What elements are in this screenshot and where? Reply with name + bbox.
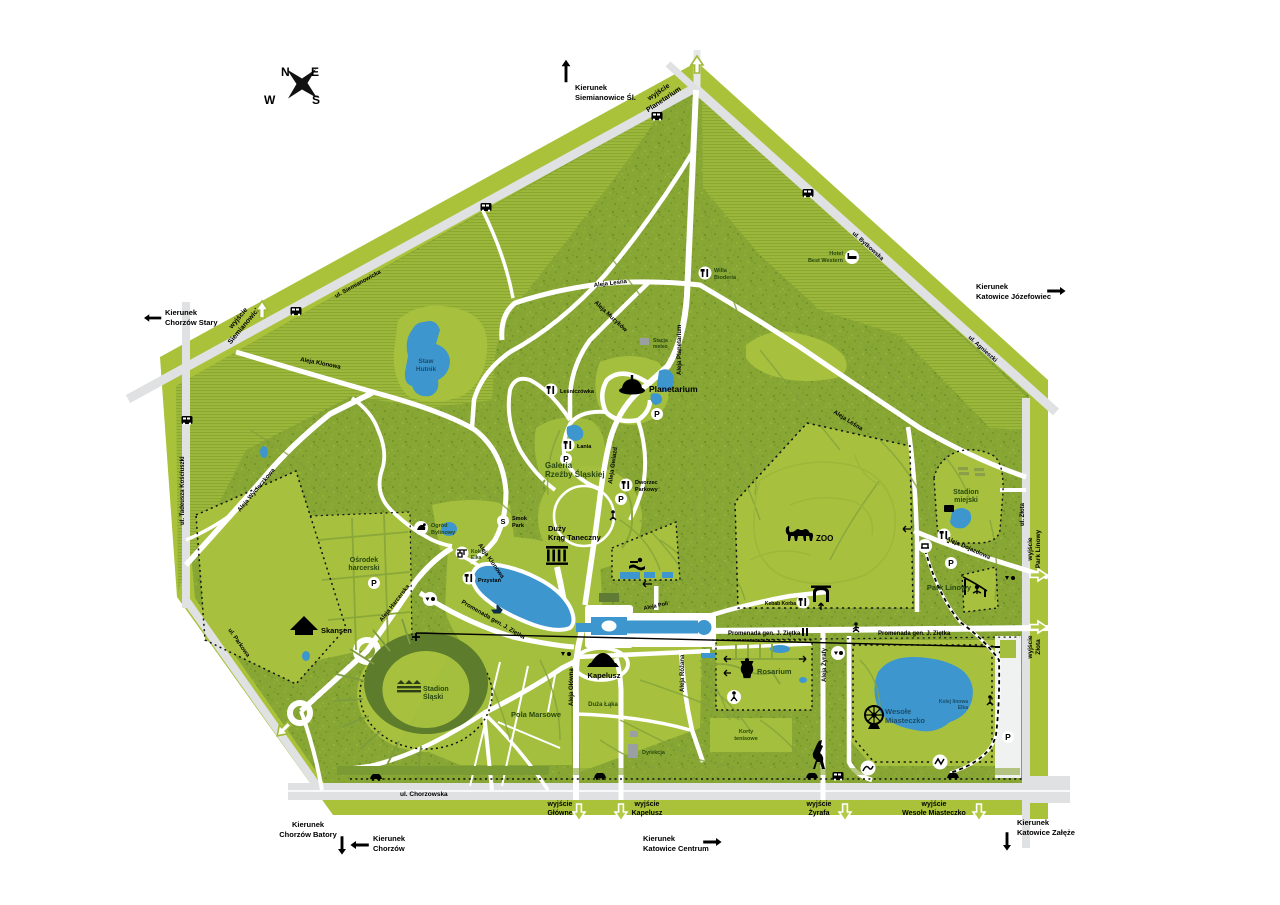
svg-text:ul. Złota: ul. Złota <box>1020 502 1026 526</box>
svg-text:Kierunek: Kierunek <box>1017 818 1050 827</box>
svg-text:Rzeźby Śląskiej: Rzeźby Śląskiej <box>545 470 605 479</box>
svg-text:Best Western: Best Western <box>808 258 844 264</box>
svg-text:Miasteczko: Miasteczko <box>885 716 925 725</box>
svg-text:Siemianowice Śl.: Siemianowice Śl. <box>575 93 636 102</box>
svg-text:S: S <box>500 517 505 526</box>
svg-text:Stadion: Stadion <box>423 686 449 693</box>
svg-text:Elka: Elka <box>471 555 482 561</box>
svg-text:Ośrodek: Ośrodek <box>350 557 379 564</box>
svg-text:meteo: meteo <box>653 344 668 350</box>
svg-text:Duża Łąka: Duża Łąka <box>588 702 618 708</box>
svg-text:Park Linowy: Park Linowy <box>1035 529 1042 568</box>
svg-text:Rosarium: Rosarium <box>757 667 792 676</box>
svg-text:Chorzów Stary: Chorzów Stary <box>165 318 218 327</box>
svg-text:Przystań: Przystań <box>478 578 502 584</box>
svg-text:miejski: miejski <box>954 497 978 504</box>
svg-text:Promenada gen. J. Ziętka: Promenada gen. J. Ziętka <box>728 631 801 637</box>
svg-text:Pola Marsowe: Pola Marsowe <box>511 710 561 719</box>
svg-text:Łania: Łania <box>577 444 592 450</box>
svg-text:ul. Chorzowska: ul. Chorzowska <box>400 791 448 798</box>
svg-text:Stadion: Stadion <box>953 489 979 496</box>
svg-text:Ogród: Ogród <box>431 523 448 529</box>
svg-text:Żyrafa: Żyrafa <box>808 809 829 817</box>
svg-text:Wesołe: Wesołe <box>885 707 911 716</box>
svg-text:Aleja Planetarium: Aleja Planetarium <box>677 325 683 375</box>
svg-text:Chorzów Batory: Chorzów Batory <box>279 830 337 839</box>
svg-text:wyjście: wyjście <box>806 801 832 808</box>
svg-text:Kapelusz: Kapelusz <box>632 810 663 817</box>
svg-text:Galeria: Galeria <box>545 461 573 470</box>
svg-text:Smok: Smok <box>512 516 528 522</box>
svg-text:Hutnik: Hutnik <box>416 366 437 373</box>
svg-text:E: E <box>311 65 319 79</box>
svg-text:Aleja Żyrafy: Aleja Żyrafy <box>821 647 828 682</box>
svg-text:Kierunek: Kierunek <box>373 834 406 843</box>
svg-text:Kierunek: Kierunek <box>575 83 608 92</box>
svg-text:wyjście: wyjście <box>921 801 947 808</box>
svg-text:Kierunek: Kierunek <box>976 282 1009 291</box>
svg-text:Duży: Duży <box>548 524 567 533</box>
svg-text:Aleja Różana: Aleja Różana <box>680 654 686 692</box>
svg-text:Promenada gen. J. Ziętka: Promenada gen. J. Ziętka <box>878 631 951 637</box>
svg-text:Kebab Korba: Kebab Korba <box>765 601 796 607</box>
svg-text:wyjście: wyjście <box>1027 537 1034 562</box>
svg-text:Planetarium: Planetarium <box>649 384 698 394</box>
svg-text:N: N <box>281 65 290 79</box>
svg-text:Skansen: Skansen <box>321 626 352 635</box>
svg-text:Dyrekcja: Dyrekcja <box>642 750 666 756</box>
svg-text:Willa: Willa <box>714 268 728 274</box>
svg-text:S: S <box>312 93 320 107</box>
svg-text:Bylinowy: Bylinowy <box>431 530 456 536</box>
svg-text:Aleja Główna: Aleja Główna <box>569 668 575 706</box>
svg-text:ZOO: ZOO <box>816 534 833 543</box>
svg-text:Hotel: Hotel <box>829 251 843 257</box>
svg-text:Dworzec: Dworzec <box>635 480 658 486</box>
svg-text:Śląski: Śląski <box>423 692 443 701</box>
svg-text:harcerski: harcerski <box>348 565 379 572</box>
svg-text:Leśniczówka: Leśniczówka <box>560 389 595 395</box>
svg-text:W: W <box>264 93 276 107</box>
svg-text:Park: Park <box>512 523 525 529</box>
svg-text:Katowice Załęże: Katowice Załęże <box>1017 828 1075 837</box>
svg-text:Kierunek: Kierunek <box>165 308 198 317</box>
svg-text:Elka: Elka <box>958 705 969 711</box>
svg-text:ul. Tadeusza Kościuszki: ul. Tadeusza Kościuszki <box>180 456 186 525</box>
svg-text:Kierunek: Kierunek <box>643 834 676 843</box>
svg-text:Bioderia: Bioderia <box>714 275 737 281</box>
svg-text:tenisowe: tenisowe <box>734 736 758 742</box>
svg-text:Złota: Złota <box>1035 639 1042 655</box>
svg-text:Główne: Główne <box>547 810 572 817</box>
svg-text:wyjście: wyjście <box>547 801 573 808</box>
svg-text:Parkowy: Parkowy <box>635 487 659 493</box>
svg-text:Kierunek: Kierunek <box>292 820 325 829</box>
svg-text:Katowice Józefowiec: Katowice Józefowiec <box>976 292 1051 301</box>
svg-text:Katowice Centrum: Katowice Centrum <box>643 844 709 853</box>
svg-text:wyjście: wyjście <box>1027 635 1034 660</box>
svg-text:wyjście: wyjście <box>634 801 660 808</box>
svg-text:Korty: Korty <box>739 729 754 735</box>
svg-text:Kapelusz: Kapelusz <box>588 671 621 680</box>
svg-text:Chorzów: Chorzów <box>373 844 405 853</box>
svg-text:Krąg Taneczny: Krąg Taneczny <box>548 533 602 542</box>
svg-text:Wesołe Miasteczko: Wesołe Miasteczko <box>902 810 966 817</box>
svg-text:Park Linowy: Park Linowy <box>927 583 972 592</box>
svg-text:Staw: Staw <box>418 358 434 365</box>
